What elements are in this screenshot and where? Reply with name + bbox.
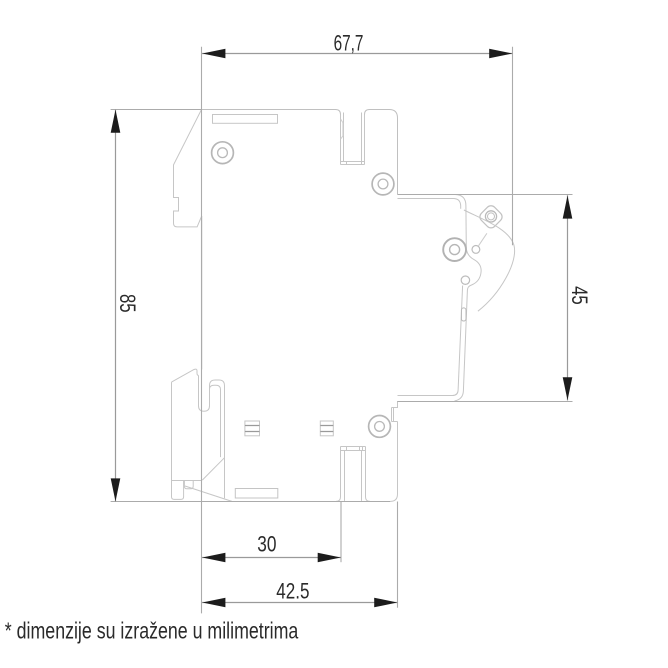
svg-text:67,7: 67,7	[334, 31, 364, 56]
svg-text:85: 85	[115, 294, 140, 313]
svg-text:* dimenzije su izražene u mili: * dimenzije su izražene u milimetrima	[5, 617, 299, 643]
svg-text:45: 45	[567, 286, 592, 305]
svg-text:30: 30	[257, 532, 276, 557]
svg-text:42.5: 42.5	[276, 578, 309, 603]
